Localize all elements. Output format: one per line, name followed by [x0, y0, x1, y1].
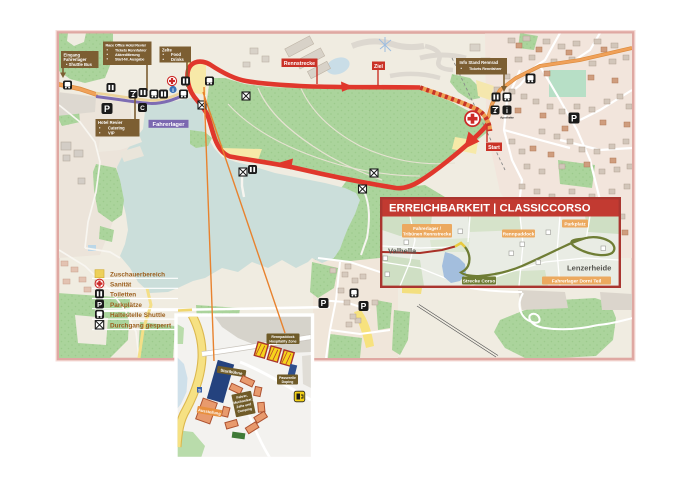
svg-text:Tickets Rennfahrer: Tickets Rennfahrer — [115, 48, 147, 52]
svg-text:Parkplatz: Parkplatz — [564, 222, 586, 228]
svg-text:Akkreditierung: Akkreditierung — [115, 53, 140, 57]
svg-text:• Shuttle Bus: • Shuttle Bus — [66, 62, 93, 67]
svg-text:VIP: VIP — [108, 130, 115, 135]
svg-text:Race Office Hotel Revier: Race Office Hotel Revier — [106, 44, 147, 48]
svg-text:C: C — [140, 105, 145, 112]
svg-text:Toiletten: Toiletten — [110, 292, 136, 299]
svg-text:Fahrerlager: Fahrerlager — [153, 122, 186, 128]
svg-text:Start-Nr. Ausgabe: Start-Nr. Ausgabe — [115, 58, 144, 62]
svg-text:Sanität: Sanität — [110, 281, 132, 288]
svg-text:P: P — [97, 300, 102, 309]
svg-text:Rennstrecke: Rennstrecke — [284, 61, 315, 67]
svg-text:Apotheke: Apotheke — [500, 116, 514, 120]
svg-text:Fahrerlager /: Fahrerlager / — [413, 226, 442, 231]
svg-text:Drinks: Drinks — [171, 57, 184, 62]
svg-text:P: P — [321, 298, 327, 308]
svg-text:Durchgang gesperrt: Durchgang gesperrt — [110, 323, 172, 330]
svg-text:Hospitality Zone: Hospitality Zone — [269, 339, 296, 343]
svg-text:Ziel: Ziel — [374, 64, 383, 70]
svg-text:P: P — [361, 301, 367, 311]
svg-text:S: S — [198, 387, 201, 392]
svg-text:Parkplätze: Parkplätze — [110, 302, 142, 309]
svg-text:Strecke Corso: Strecke Corso — [463, 279, 496, 285]
svg-text:Fahrerlager Dorni Teil: Fahrerlager Dorni Teil — [552, 279, 602, 285]
svg-text:Doping: Doping — [282, 380, 294, 384]
svg-text:Tickets Rennfahrer: Tickets Rennfahrer — [469, 67, 502, 71]
svg-text:i: i — [506, 108, 508, 115]
svg-text:Lenzerheide: Lenzerheide — [567, 264, 611, 273]
svg-text:Valbella: Valbella — [388, 247, 417, 256]
svg-text:P: P — [104, 104, 110, 114]
svg-text:Tribünen Rennstrecke: Tribünen Rennstrecke — [403, 232, 452, 237]
svg-text:ERREICHBARKEIT | CLASSICCORSO: ERREICHBARKEIT | CLASSICCORSO — [389, 203, 591, 215]
svg-text:Zuschauerbereich: Zuschauerbereich — [110, 272, 165, 279]
svg-text:Haltestelle Shuttle: Haltestelle Shuttle — [110, 312, 166, 319]
svg-text:Rennpaddock: Rennpaddock — [503, 232, 535, 238]
svg-text:Info Stand Rennrad: Info Stand Rennrad — [460, 60, 499, 65]
svg-text:P: P — [571, 113, 577, 123]
svg-text:Start: Start — [488, 145, 500, 151]
